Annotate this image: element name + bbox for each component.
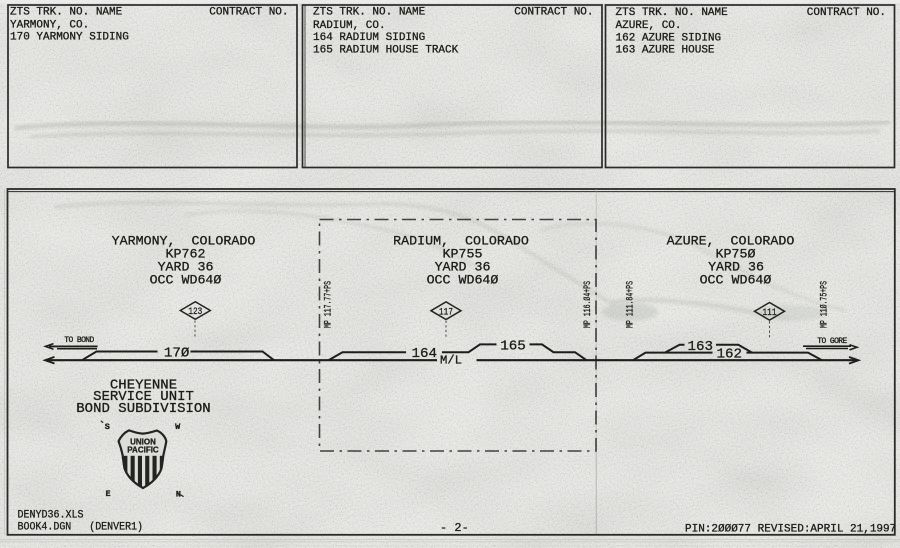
svg-text:CONTRACT NO.: CONTRACT NO. — [514, 7, 593, 19]
svg-text:17Ø: 17Ø — [164, 346, 190, 362]
svg-text:165: 165 — [500, 339, 526, 355]
svg-text:M/L: M/L — [440, 354, 462, 368]
svg-text:- 2-: - 2- — [440, 521, 469, 535]
svg-text:164: 164 — [412, 346, 438, 362]
svg-text:BOOK4.DGN (DENVER1): BOOK4.DGN (DENVER1) — [18, 522, 144, 534]
svg-text:162 AZURE SIDING: 162 AZURE SIDING — [616, 32, 722, 44]
svg-text:PIN:2ØØØ77 REVISED:APRIL 21,19: PIN:2ØØØ77 REVISED:APRIL 21,1997 — [685, 524, 896, 536]
svg-text:N: N — [176, 489, 181, 499]
svg-text:ZTS TRK. NO. NAME: ZTS TRK. NO. NAME — [313, 7, 426, 19]
svg-text:111: 111 — [763, 306, 777, 319]
svg-text:ZTS TRK. NO. NAME: ZTS TRK. NO. NAME — [10, 7, 123, 19]
svg-text:MP 117.77+PS: MP 117.77+PS — [322, 281, 334, 328]
svg-text:163: 163 — [688, 339, 714, 355]
svg-text:E: E — [105, 489, 110, 499]
svg-text:165 RADIUM HOUSE TRACK: 165 RADIUM HOUSE TRACK — [313, 44, 459, 56]
svg-text:117: 117 — [439, 305, 453, 318]
svg-text:163 AZURE HOUSE: 163 AZURE HOUSE — [616, 45, 715, 57]
svg-text:CONTRACT NO.: CONTRACT NO. — [209, 7, 288, 19]
svg-text:MP 111.84+PS: MP 111.84+PS — [624, 281, 636, 328]
svg-text:162: 162 — [717, 347, 743, 363]
svg-text:OCC WD64Ø: OCC WD64Ø — [150, 272, 222, 287]
svg-text:170 YARMONY SIDING: 170 YARMONY SIDING — [10, 32, 129, 44]
svg-text:CONTRACT NO.: CONTRACT NO. — [807, 7, 886, 19]
svg-text:YARMONY, CO.: YARMONY, CO. — [10, 20, 89, 32]
svg-text:TO GORE: TO GORE — [817, 337, 847, 346]
svg-text:S: S — [105, 422, 110, 432]
svg-text:DENYD36.XLS: DENYD36.XLS — [18, 509, 84, 521]
svg-text:BOND SUBDIVISION: BOND SUBDIVISION — [76, 401, 210, 417]
svg-text:PACIFIC: PACIFIC — [127, 445, 159, 454]
svg-text:164 RADIUM SIDING: 164 RADIUM SIDING — [313, 32, 425, 44]
svg-text:RADIUM, CO.: RADIUM, CO. — [313, 20, 386, 32]
svg-text:W: W — [175, 422, 181, 432]
svg-text:TO BOND: TO BOND — [64, 336, 94, 345]
svg-text:ZTS TRK. NO. NAME: ZTS TRK. NO. NAME — [616, 7, 729, 19]
svg-text:AZURE, CO.: AZURE, CO. — [616, 20, 682, 32]
svg-text:123: 123 — [188, 305, 202, 318]
svg-text:MP 116.Ø4+PS: MP 116.Ø4+PS — [582, 281, 594, 328]
svg-text:MP 11Ø.75+PS: MP 11Ø.75+PS — [819, 281, 831, 328]
svg-text:OCC WD64Ø: OCC WD64Ø — [700, 272, 772, 287]
svg-text:OCC WD64Ø: OCC WD64Ø — [427, 272, 499, 287]
